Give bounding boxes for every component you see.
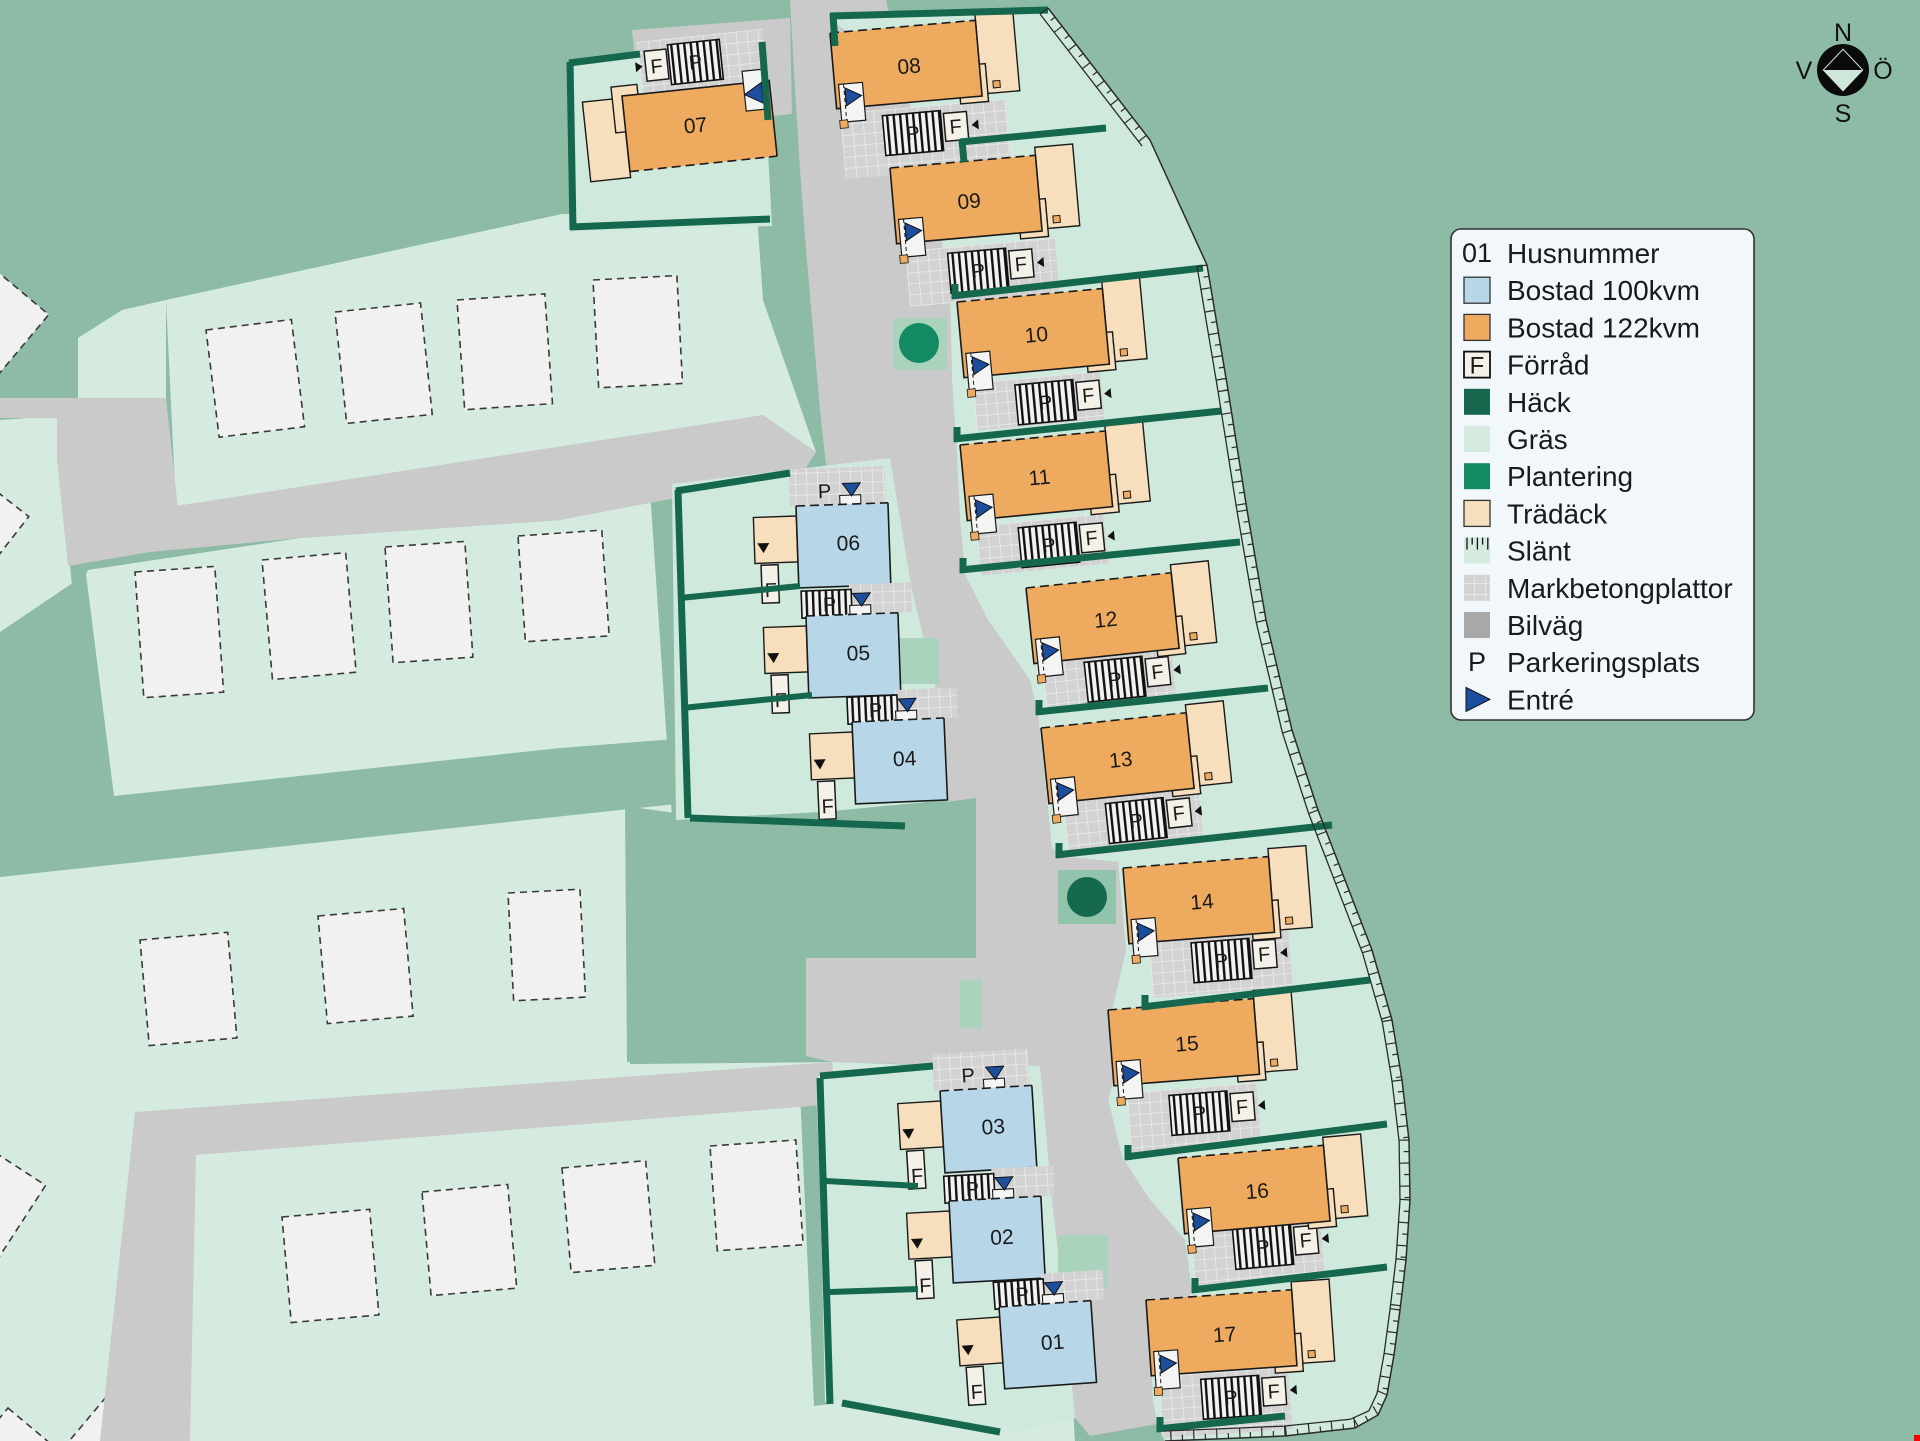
svg-text:16: 16 [1245, 1179, 1270, 1204]
svg-text:F: F [1257, 944, 1271, 967]
svg-text:F: F [1235, 1096, 1249, 1119]
svg-text:11: 11 [1028, 466, 1052, 491]
svg-text:Parkeringsplats: Parkeringsplats [1507, 647, 1700, 678]
svg-text:P: P [1192, 1103, 1207, 1126]
svg-text:F: F [1150, 661, 1164, 684]
svg-text:F: F [1172, 802, 1186, 825]
svg-text:P: P [868, 700, 882, 723]
svg-text:P: P [1224, 1387, 1239, 1410]
svg-text:F: F [970, 1381, 984, 1404]
svg-text:F: F [650, 55, 664, 78]
svg-text:Häck: Häck [1507, 387, 1572, 418]
svg-text:P: P [1214, 950, 1229, 973]
svg-text:S: S [1835, 100, 1852, 128]
svg-text:01: 01 [1040, 1331, 1065, 1356]
svg-text:P: P [1468, 647, 1486, 677]
svg-text:09: 09 [957, 189, 982, 214]
svg-text:F: F [1081, 385, 1095, 408]
svg-text:10: 10 [1024, 323, 1049, 348]
svg-text:F: F [1299, 1230, 1313, 1253]
svg-text:Gräs: Gräs [1507, 424, 1568, 455]
svg-text:Förråd: Förråd [1507, 350, 1589, 381]
svg-text:03: 03 [981, 1115, 1006, 1139]
svg-text:05: 05 [846, 642, 870, 666]
svg-text:P: P [1015, 1284, 1030, 1307]
svg-text:01: 01 [1462, 238, 1492, 268]
svg-text:P: P [905, 123, 920, 146]
svg-text:P: P [1107, 669, 1123, 692]
svg-text:Markbetongplattor: Markbetongplattor [1507, 573, 1733, 604]
svg-text:V: V [1796, 57, 1813, 85]
svg-text:P: P [961, 1065, 976, 1088]
svg-text:F: F [821, 796, 834, 819]
svg-text:P: P [971, 260, 986, 283]
svg-text:P: P [1041, 534, 1056, 557]
svg-text:P: P [823, 594, 837, 616]
svg-text:F: F [1084, 527, 1098, 550]
svg-text:F: F [1014, 253, 1028, 276]
svg-text:P: P [965, 1178, 979, 1201]
svg-text:02: 02 [990, 1226, 1015, 1250]
svg-text:F: F [949, 116, 963, 139]
svg-text:Slänt: Slänt [1507, 536, 1571, 567]
svg-text:07: 07 [683, 113, 709, 138]
svg-text:Husnummer: Husnummer [1507, 238, 1659, 269]
svg-text:13: 13 [1108, 748, 1134, 773]
svg-text:P: P [1129, 810, 1145, 833]
svg-text:F: F [1267, 1381, 1281, 1404]
svg-text:P: P [1256, 1236, 1271, 1259]
svg-text:Plantering: Plantering [1507, 461, 1633, 492]
svg-text:17: 17 [1212, 1323, 1237, 1348]
svg-text:06: 06 [836, 532, 860, 556]
svg-text:Ö: Ö [1873, 57, 1892, 85]
svg-text:Bostad 100kvm: Bostad 100kvm [1507, 275, 1700, 306]
svg-text:Entré: Entré [1507, 684, 1574, 715]
svg-text:F: F [919, 1275, 932, 1298]
svg-text:Trädäck: Trädäck [1507, 498, 1608, 529]
svg-text:P: P [1038, 392, 1053, 415]
svg-text:Bostad 122kvm: Bostad 122kvm [1507, 312, 1700, 343]
svg-text:12: 12 [1093, 608, 1119, 633]
svg-text:Bilväg: Bilväg [1507, 610, 1583, 641]
svg-text:F: F [1470, 353, 1485, 380]
svg-text:P: P [688, 51, 704, 74]
svg-text:N: N [1834, 19, 1852, 47]
svg-text:14: 14 [1189, 890, 1214, 915]
svg-text:P: P [817, 481, 831, 503]
svg-text:15: 15 [1174, 1032, 1199, 1057]
svg-text:08: 08 [897, 54, 922, 79]
svg-text:04: 04 [893, 747, 918, 771]
